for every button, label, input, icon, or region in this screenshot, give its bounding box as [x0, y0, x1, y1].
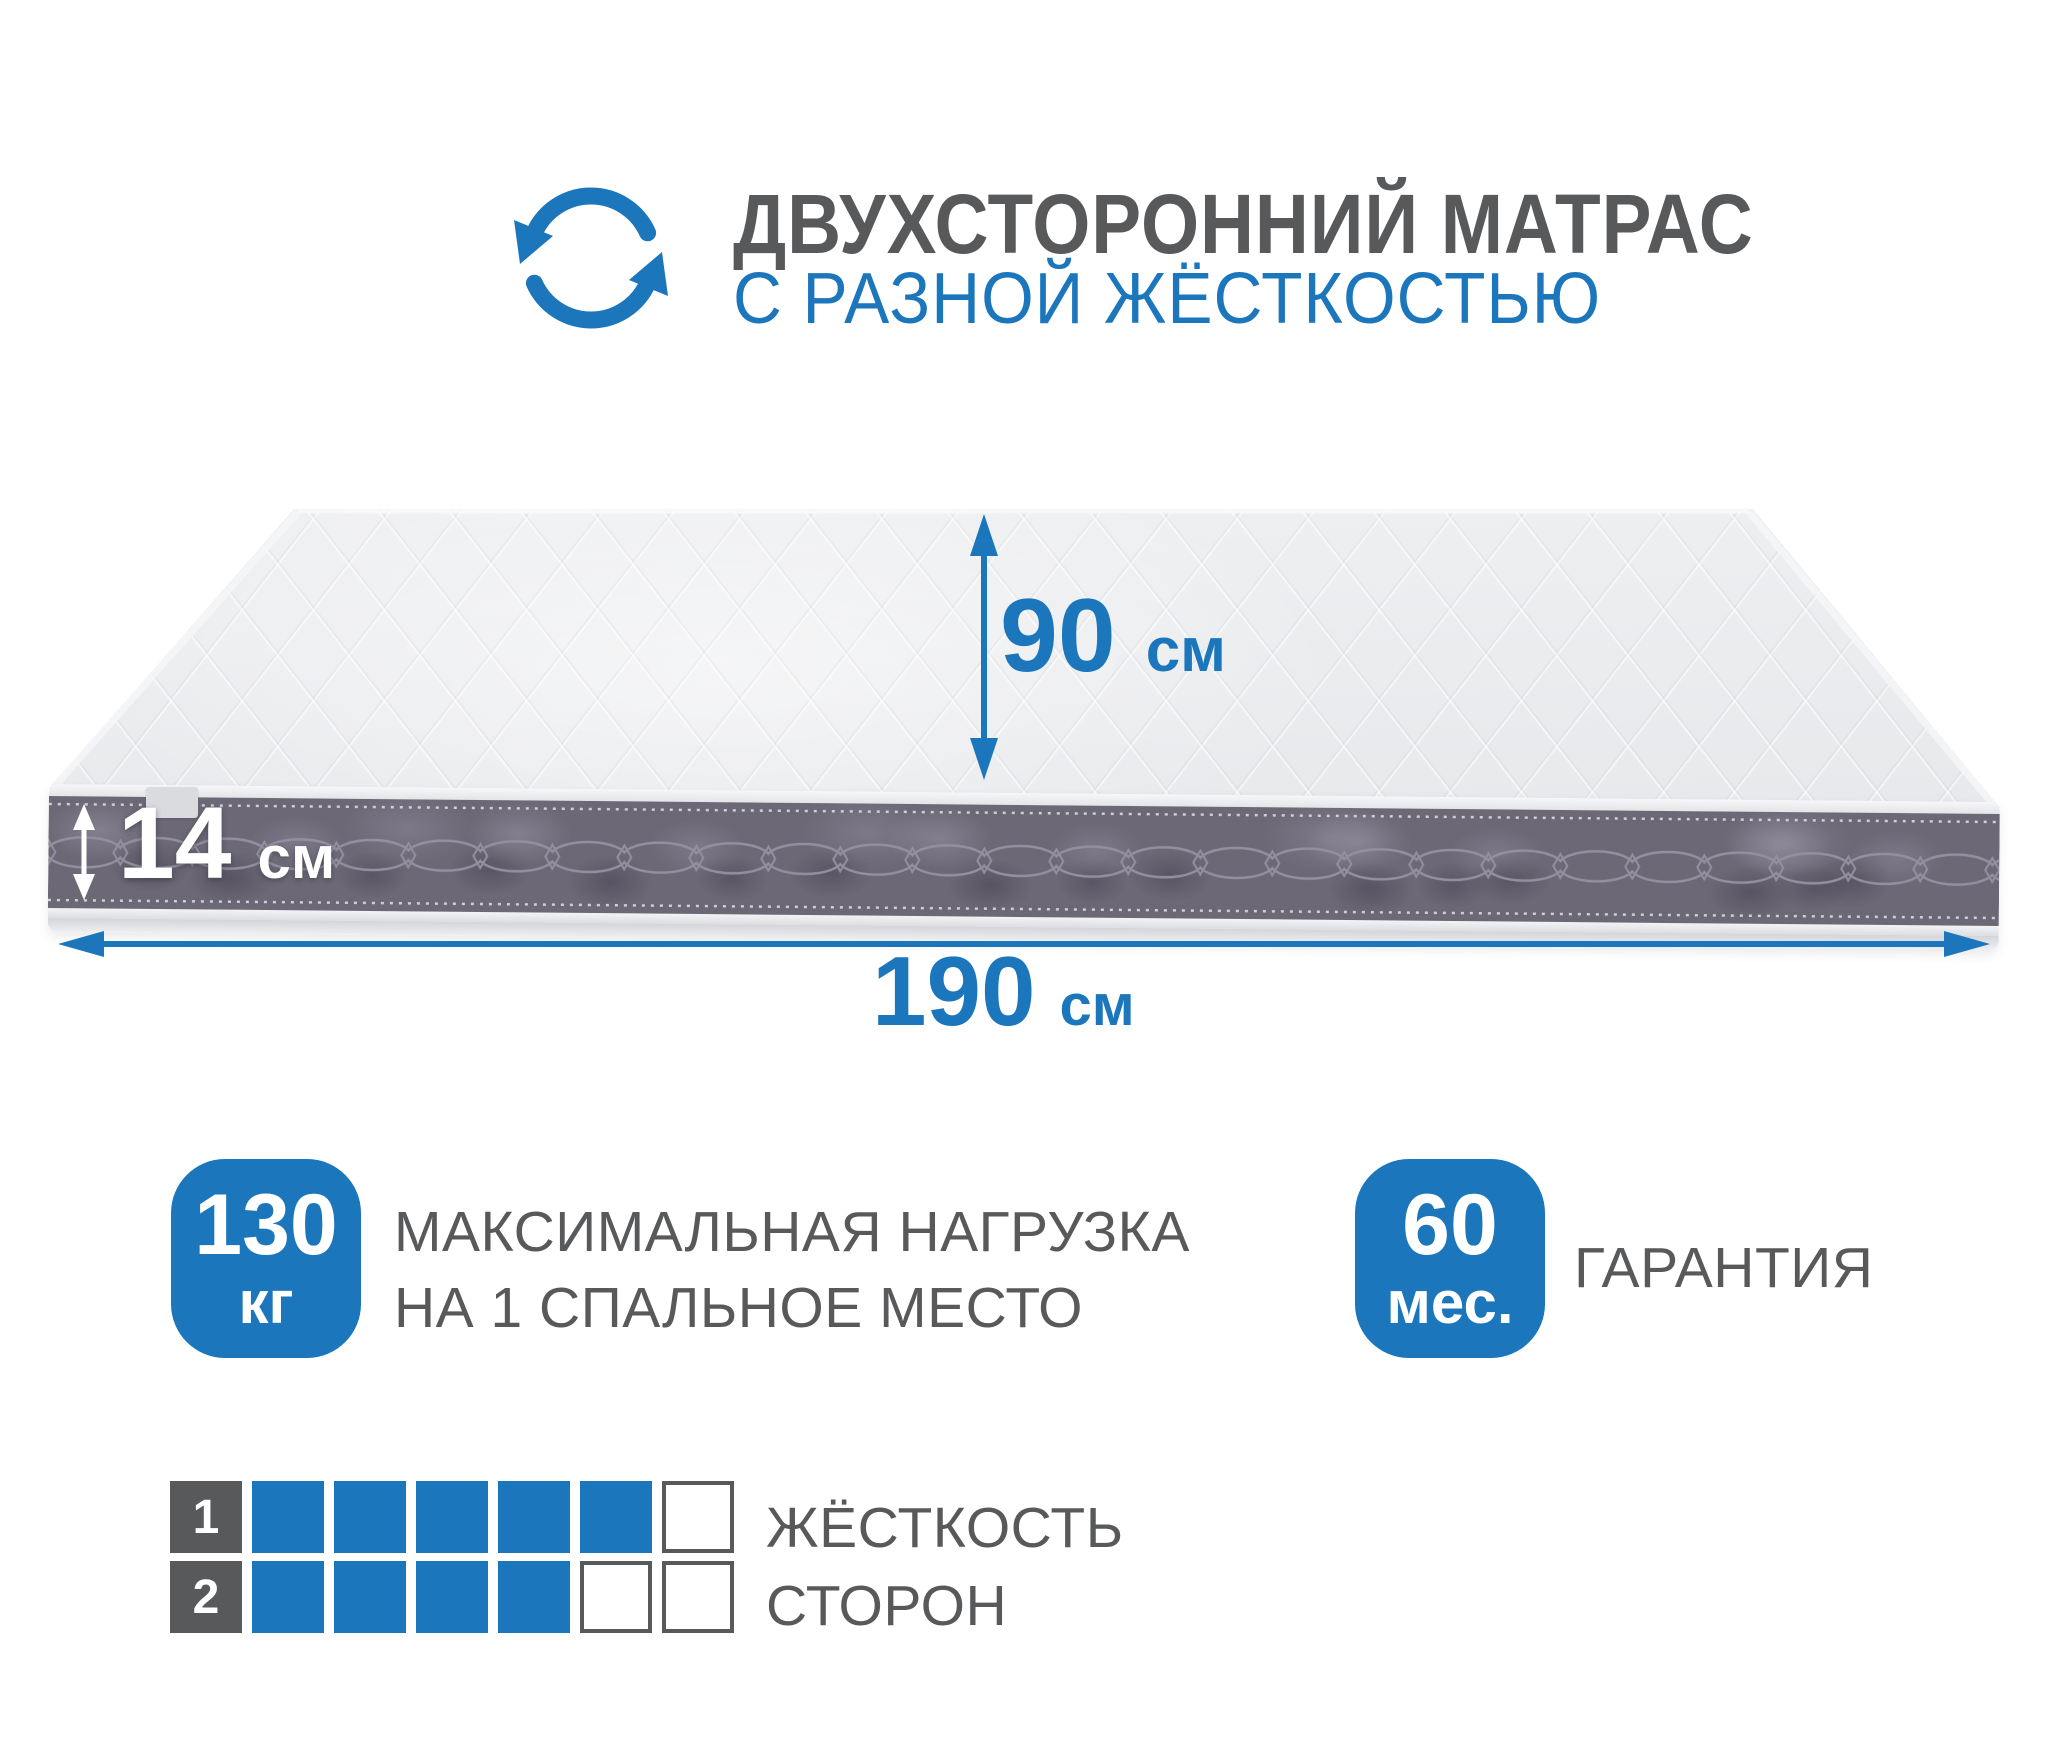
hardness-side-label: 1 — [170, 1481, 242, 1553]
hardness-cell-empty — [662, 1481, 734, 1553]
max-load-value: 130 — [194, 1186, 338, 1265]
length-value: 190 — [872, 942, 1036, 1040]
hardness-cell-filled — [252, 1561, 324, 1633]
hardness-cell-filled — [498, 1481, 570, 1553]
warranty-unit: мес. — [1386, 1274, 1513, 1331]
hardness-side-label: 2 — [170, 1561, 242, 1633]
length-unit: см — [1060, 977, 1135, 1035]
side-fabric — [48, 796, 2000, 926]
hardness-cell-empty — [580, 1561, 652, 1633]
mattress-front-side — [48, 784, 2000, 950]
max-load-caption: МАКСИМАЛЬНАЯ НАГРУЗКА НА 1 СПАЛЬНОЕ МЕСТ… — [394, 1194, 1190, 1346]
thickness-unit: см — [257, 828, 335, 888]
hardness-caption-line1: ЖЁСТКОСТЬ — [766, 1489, 1124, 1567]
side-stitch-pattern — [48, 796, 2000, 926]
warranty-caption: ГАРАНТИЯ — [1574, 1230, 1873, 1306]
page-subtitle: С РАЗНОЙ ЖЁСТКОСТЬЮ — [733, 262, 1601, 338]
max-load-badge: 130 кг — [171, 1159, 361, 1358]
width-value: 90 — [1000, 584, 1116, 688]
mattress-infographic: ДВУХСТОРОННИЙ МАТРАС С РАЗНОЙ ЖЁСТКОСТЬЮ — [0, 0, 2048, 1757]
hardness-row: 2 — [170, 1561, 734, 1633]
max-load-unit: кг — [238, 1274, 293, 1331]
thickness-value: 14 — [118, 792, 231, 894]
hardness-cell-filled — [334, 1481, 406, 1553]
hardness-cell-empty — [662, 1561, 734, 1633]
hardness-cell-filled — [416, 1481, 488, 1553]
hardness-cell-filled — [252, 1481, 324, 1553]
max-load-caption-line1: МАКСИМАЛЬНАЯ НАГРУЗКА — [394, 1194, 1190, 1270]
thickness-dimension-label: 14 см — [118, 792, 335, 894]
width-unit: см — [1146, 620, 1226, 682]
hardness-cell-filled — [416, 1561, 488, 1633]
hardness-row: 1 — [170, 1481, 734, 1553]
length-dimension-label: 190 см — [872, 942, 1135, 1040]
hardness-grid: 12 — [170, 1481, 734, 1633]
hardness-cell-filled — [334, 1561, 406, 1633]
hardness-caption: ЖЁСТКОСТЬ СТОРОН — [766, 1489, 1124, 1645]
width-dimension-label: 90 см — [1000, 584, 1226, 688]
max-load-caption-line2: НА 1 СПАЛЬНОЕ МЕСТО — [394, 1270, 1190, 1346]
hardness-cell-filled — [580, 1481, 652, 1553]
page-title: ДВУХСТОРОННИЙ МАТРАС — [733, 180, 1754, 268]
hardness-cell-filled — [498, 1561, 570, 1633]
warranty-badge: 60 мес. — [1355, 1159, 1545, 1358]
warranty-value: 60 — [1402, 1186, 1498, 1265]
rotate-two-sided-icon — [505, 176, 677, 340]
hardness-caption-line2: СТОРОН — [766, 1567, 1124, 1645]
